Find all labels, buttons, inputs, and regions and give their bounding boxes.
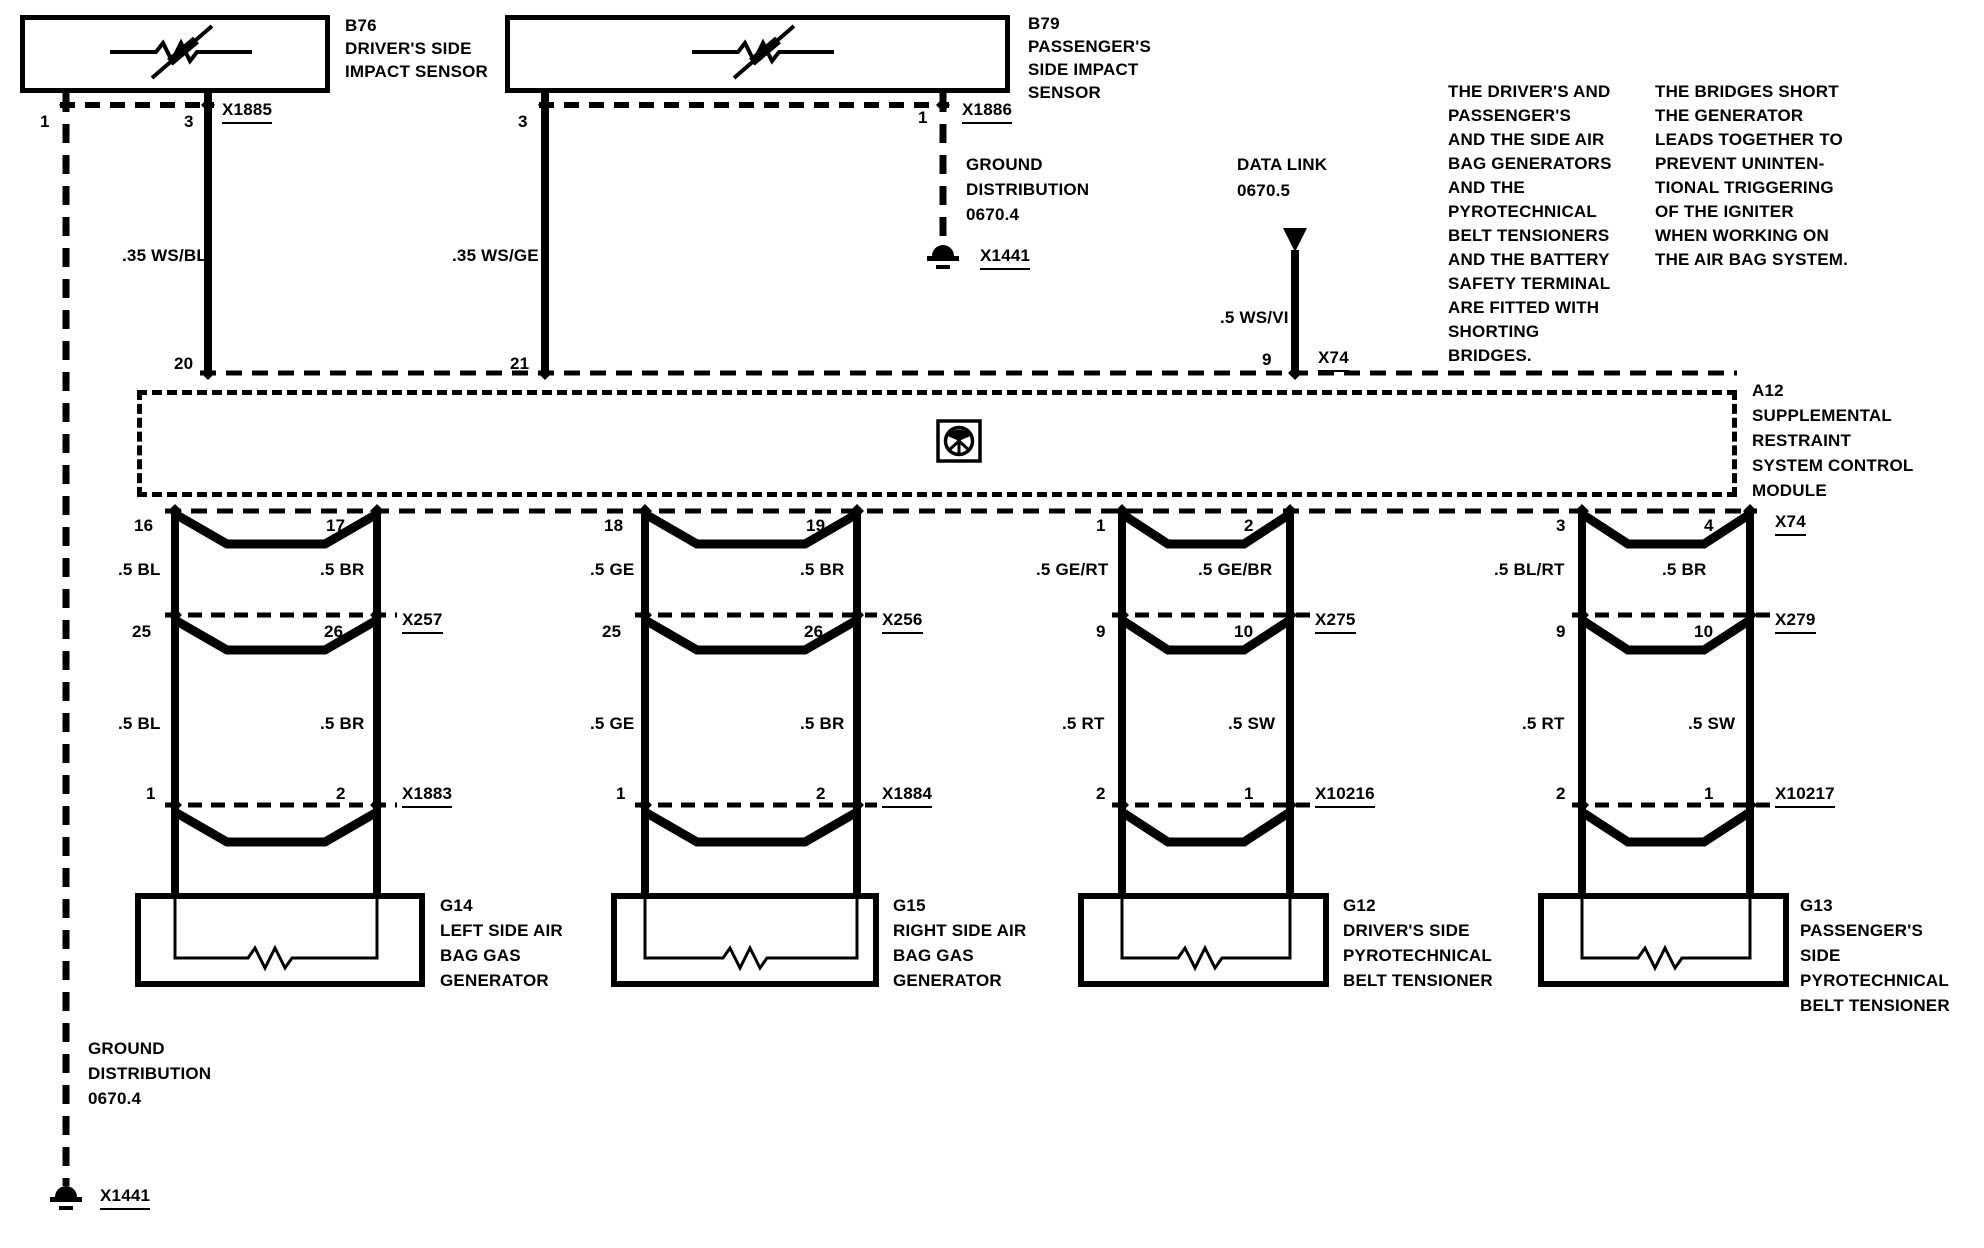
b76-pin-1: 1 xyxy=(40,110,50,133)
connector-ref-x256[interactable]: X256 xyxy=(882,608,923,634)
wire-label-ws-bl: .35 WS/BL xyxy=(122,244,207,267)
b2-pin-19: 19 xyxy=(806,514,825,537)
b1-pin-2: 2 xyxy=(336,782,346,805)
connector-ref-x1885[interactable]: X1885 xyxy=(222,98,272,124)
g15-device-label: G15 RIGHT SIDE AIR BAG GAS GENERATOR xyxy=(893,893,1026,993)
b76-impact-sensor-icon xyxy=(110,26,252,78)
g14-device-label: G14 LEFT SIDE AIR BAG GAS GENERATOR xyxy=(440,893,563,993)
b3-pin-1-low: 1 xyxy=(1244,782,1254,805)
b2-pin-1: 1 xyxy=(616,782,626,805)
note-shorting-bridges: THE DRIVER'S AND PASSENGER'S AND THE SID… xyxy=(1448,80,1612,368)
b2-wire1-left: .5 GE xyxy=(590,558,634,581)
connector-ref-x1441-bottom[interactable]: X1441 xyxy=(100,1184,150,1210)
wire-label-ws-vi: .5 WS/VI xyxy=(1220,306,1289,329)
connector-ref-x74-bottom[interactable]: X74 xyxy=(1775,510,1806,536)
b1-pin-26: 26 xyxy=(324,620,343,643)
b4-wire1-right: .5 BR xyxy=(1662,558,1706,581)
b1-wire1-right: .5 BR xyxy=(320,558,364,581)
b4-pin-9: 9 xyxy=(1556,620,1566,643)
b4-wire2-right: .5 SW xyxy=(1688,712,1735,735)
b3-pin-2-low: 2 xyxy=(1096,782,1106,805)
b1-wire2-left: .5 BL xyxy=(118,712,161,735)
b2-pin-25: 25 xyxy=(602,620,621,643)
b79-impact-sensor-icon xyxy=(692,26,834,78)
b3-pin-1: 1 xyxy=(1096,514,1106,537)
connector-ref-x10216[interactable]: X10216 xyxy=(1315,782,1375,808)
b79-label: B79 PASSENGER'S SIDE IMPACT SENSOR xyxy=(1028,12,1151,104)
b4-pin-4: 4 xyxy=(1704,514,1714,537)
ground-distribution-top-label: GROUND DISTRIBUTION 0670.4 xyxy=(966,152,1089,227)
b4-pin-10: 10 xyxy=(1694,620,1713,643)
b3-pin-2: 2 xyxy=(1244,514,1254,537)
b2-wire1-right: .5 BR xyxy=(800,558,844,581)
connector-ref-x1441-top[interactable]: X1441 xyxy=(980,244,1030,270)
data-link-label: DATA LINK 0670.5 xyxy=(1237,152,1327,204)
wiring-diagram-page: B76 DRIVER'S SIDE IMPACT SENSOR B79 PASS… xyxy=(0,0,1984,1248)
b1-wire2-right: .5 BR xyxy=(320,712,364,735)
b2-wire2-left: .5 GE xyxy=(590,712,634,735)
b3-wire1-right: .5 GE/BR xyxy=(1198,558,1272,581)
connector-ref-x279[interactable]: X279 xyxy=(1775,608,1816,634)
g13-device-label: G13 PASSENGER'S SIDE PYROTECHNICAL BELT … xyxy=(1800,893,1950,1018)
b3-pin-9: 9 xyxy=(1096,620,1106,643)
b3-pin-10: 10 xyxy=(1234,620,1253,643)
ground-symbol-x1441-top xyxy=(927,245,959,269)
b1-pin-17: 17 xyxy=(326,514,345,537)
b76-pin-3: 3 xyxy=(184,110,194,133)
b76-label: B76 DRIVER'S SIDE IMPACT SENSOR xyxy=(345,14,488,83)
b4-pin-3: 3 xyxy=(1556,514,1566,537)
connector-ref-x10217[interactable]: X10217 xyxy=(1775,782,1835,808)
b79-pin-1: 1 xyxy=(918,106,928,129)
a12-pin-21: 21 xyxy=(510,352,529,375)
b2-pin-2: 2 xyxy=(816,782,826,805)
connector-ref-x1886[interactable]: X1886 xyxy=(962,98,1012,124)
b4-pin-2-low: 2 xyxy=(1556,782,1566,805)
connector-ref-x275[interactable]: X275 xyxy=(1315,608,1356,634)
a12-pin-9: 9 xyxy=(1262,348,1272,371)
data-link-arrow-icon xyxy=(1283,228,1307,252)
connector-ref-x1884[interactable]: X1884 xyxy=(882,782,932,808)
wire-label-ws-ge: .35 WS/GE xyxy=(452,244,539,267)
b2-wire2-right: .5 BR xyxy=(800,712,844,735)
b2-pin-26: 26 xyxy=(804,620,823,643)
b3-wire1-left: .5 GE/RT xyxy=(1036,558,1108,581)
b4-wire1-left: .5 BL/RT xyxy=(1494,558,1565,581)
b1-pin-1: 1 xyxy=(146,782,156,805)
g12-device-label: G12 DRIVER'S SIDE PYROTECHNICAL BELT TEN… xyxy=(1343,893,1493,993)
b79-pin-3: 3 xyxy=(518,110,528,133)
b3-wire2-left: .5 RT xyxy=(1062,712,1105,735)
steering-wheel-icon xyxy=(938,421,980,461)
a12-module-label: A12 SUPPLEMENTAL RESTRAINT SYSTEM CONTRO… xyxy=(1752,378,1913,503)
connector-ref-x257[interactable]: X257 xyxy=(402,608,443,634)
b4-wire2-left: .5 RT xyxy=(1522,712,1565,735)
ground-symbol-x1441-bottom xyxy=(50,1186,82,1210)
b2-pin-18: 18 xyxy=(604,514,623,537)
b1-pin-25: 25 xyxy=(132,620,151,643)
b1-pin-16: 16 xyxy=(134,514,153,537)
b1-wire1-left: .5 BL xyxy=(118,558,161,581)
note-bridges-short: THE BRIDGES SHORT THE GENERATOR LEADS TO… xyxy=(1655,80,1848,272)
a12-pin-20: 20 xyxy=(174,352,193,375)
b4-pin-1-low: 1 xyxy=(1704,782,1714,805)
connector-ref-x74-top[interactable]: X74 xyxy=(1318,346,1349,372)
b3-wire2-right: .5 SW xyxy=(1228,712,1275,735)
connector-ref-x1883[interactable]: X1883 xyxy=(402,782,452,808)
ground-distribution-bottom-label: GROUND DISTRIBUTION 0670.4 xyxy=(88,1036,211,1111)
